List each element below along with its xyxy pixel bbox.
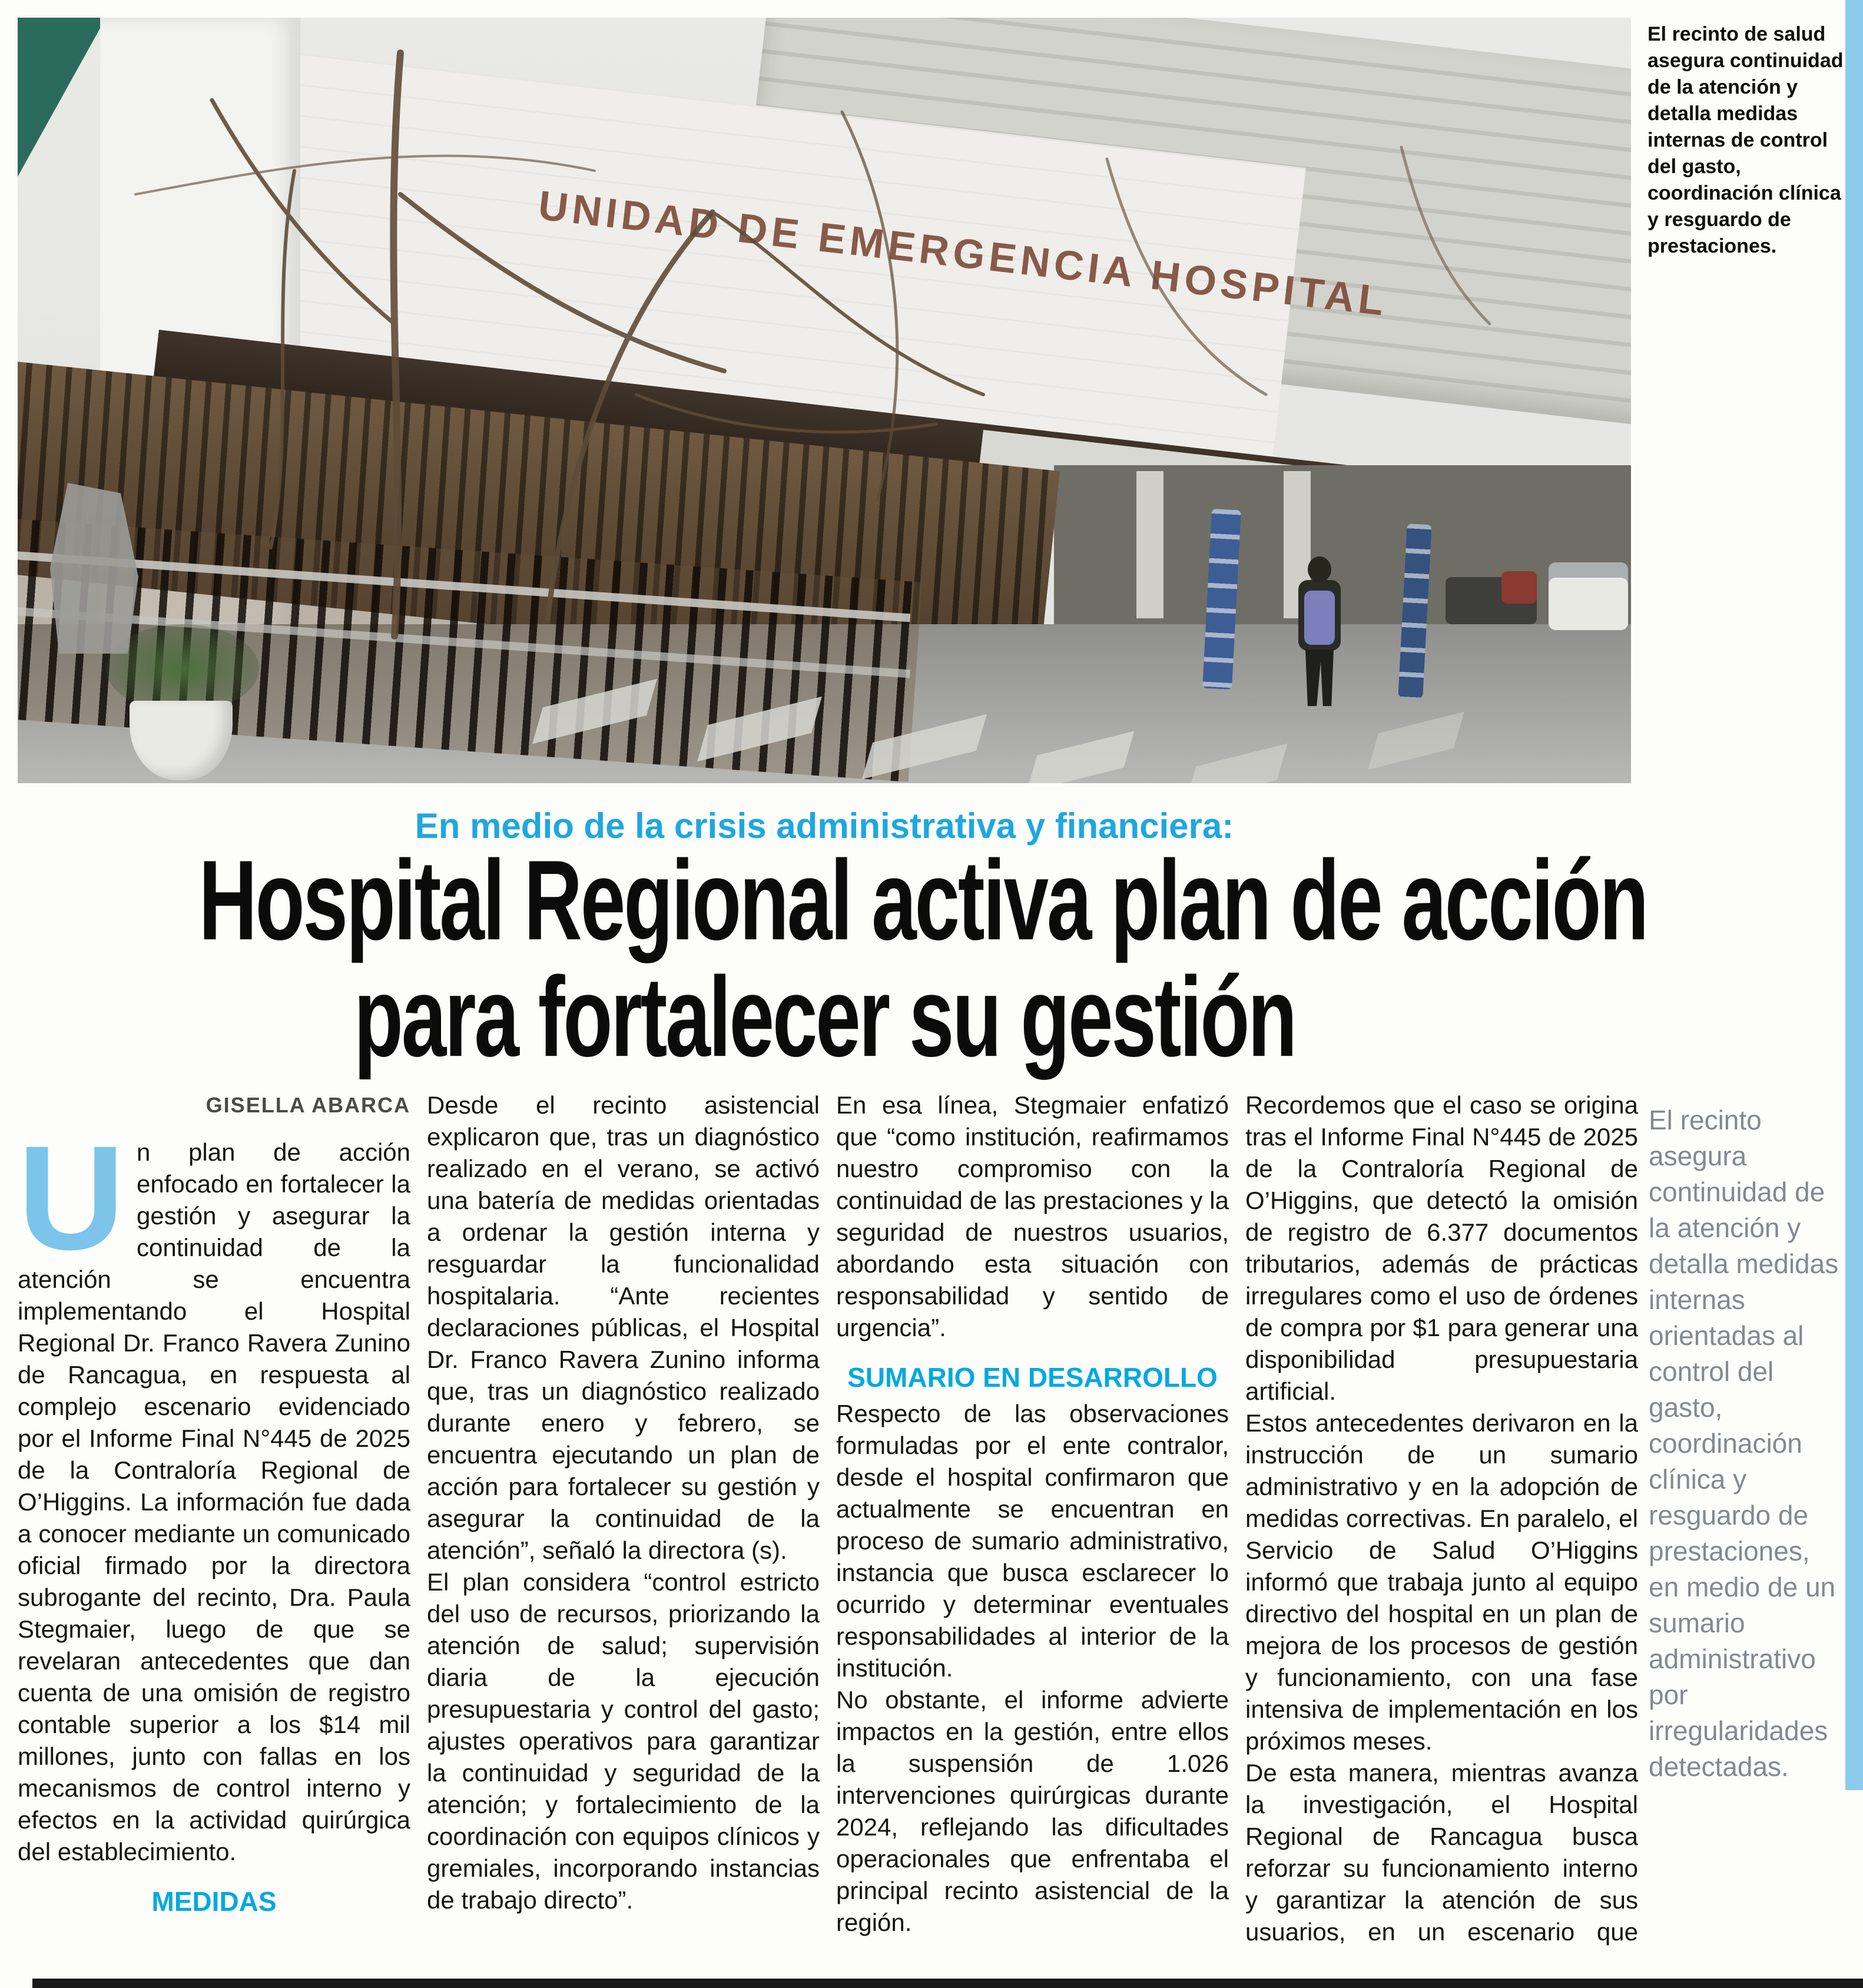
body-paragraph: Un plan de acción enfocado en fortalecer… <box>18 1137 410 1868</box>
body-paragraph: Estos antecedentes derivaron en la instr… <box>1245 1407 1638 1757</box>
body-paragraph: Desde el recinto asistencial explicaron … <box>427 1089 820 1566</box>
section-subhead: MEDIDAS <box>18 1886 410 1917</box>
page-edge-bar <box>1845 0 1863 1790</box>
body-paragraph: En esa línea, Stegmaier enfatizó que “co… <box>836 1089 1229 1344</box>
headline: Hospital Regional activa plan de acción … <box>18 842 1631 1075</box>
newspaper-page: UNIDAD DE EMERGENCIA HOSPITAL <box>0 0 1863 1988</box>
body-paragraph: Respecto de las observaciones formuladas… <box>836 1398 1229 1684</box>
body-paragraph: No obstante, el informe advierte impacto… <box>836 1684 1229 1939</box>
article-body: GISELLA ABARCA Un plan de acción enfocad… <box>18 1089 1638 1974</box>
photo-tree-branches <box>18 18 1631 783</box>
body-paragraph: Recordemos que el caso se origina tras e… <box>1245 1089 1638 1407</box>
body-paragraph: El plan considera “control estricto del … <box>427 1566 820 1916</box>
photo-caption: El recinto de salud asegura continuidad … <box>1647 21 1845 260</box>
bottom-rule <box>32 1979 1863 1988</box>
headline-line-2: para fortalecer su gestión <box>353 952 1295 1082</box>
pull-quote: El recinto asegura continuidad de la ate… <box>1649 1102 1843 1785</box>
headline-line-1: Hospital Regional activa plan de acción <box>198 835 1647 966</box>
drop-cap: U <box>18 1137 137 1257</box>
article-photo: UNIDAD DE EMERGENCIA HOSPITAL <box>18 18 1631 783</box>
section-subhead: SUMARIO EN DESARROLLO <box>836 1361 1229 1393</box>
